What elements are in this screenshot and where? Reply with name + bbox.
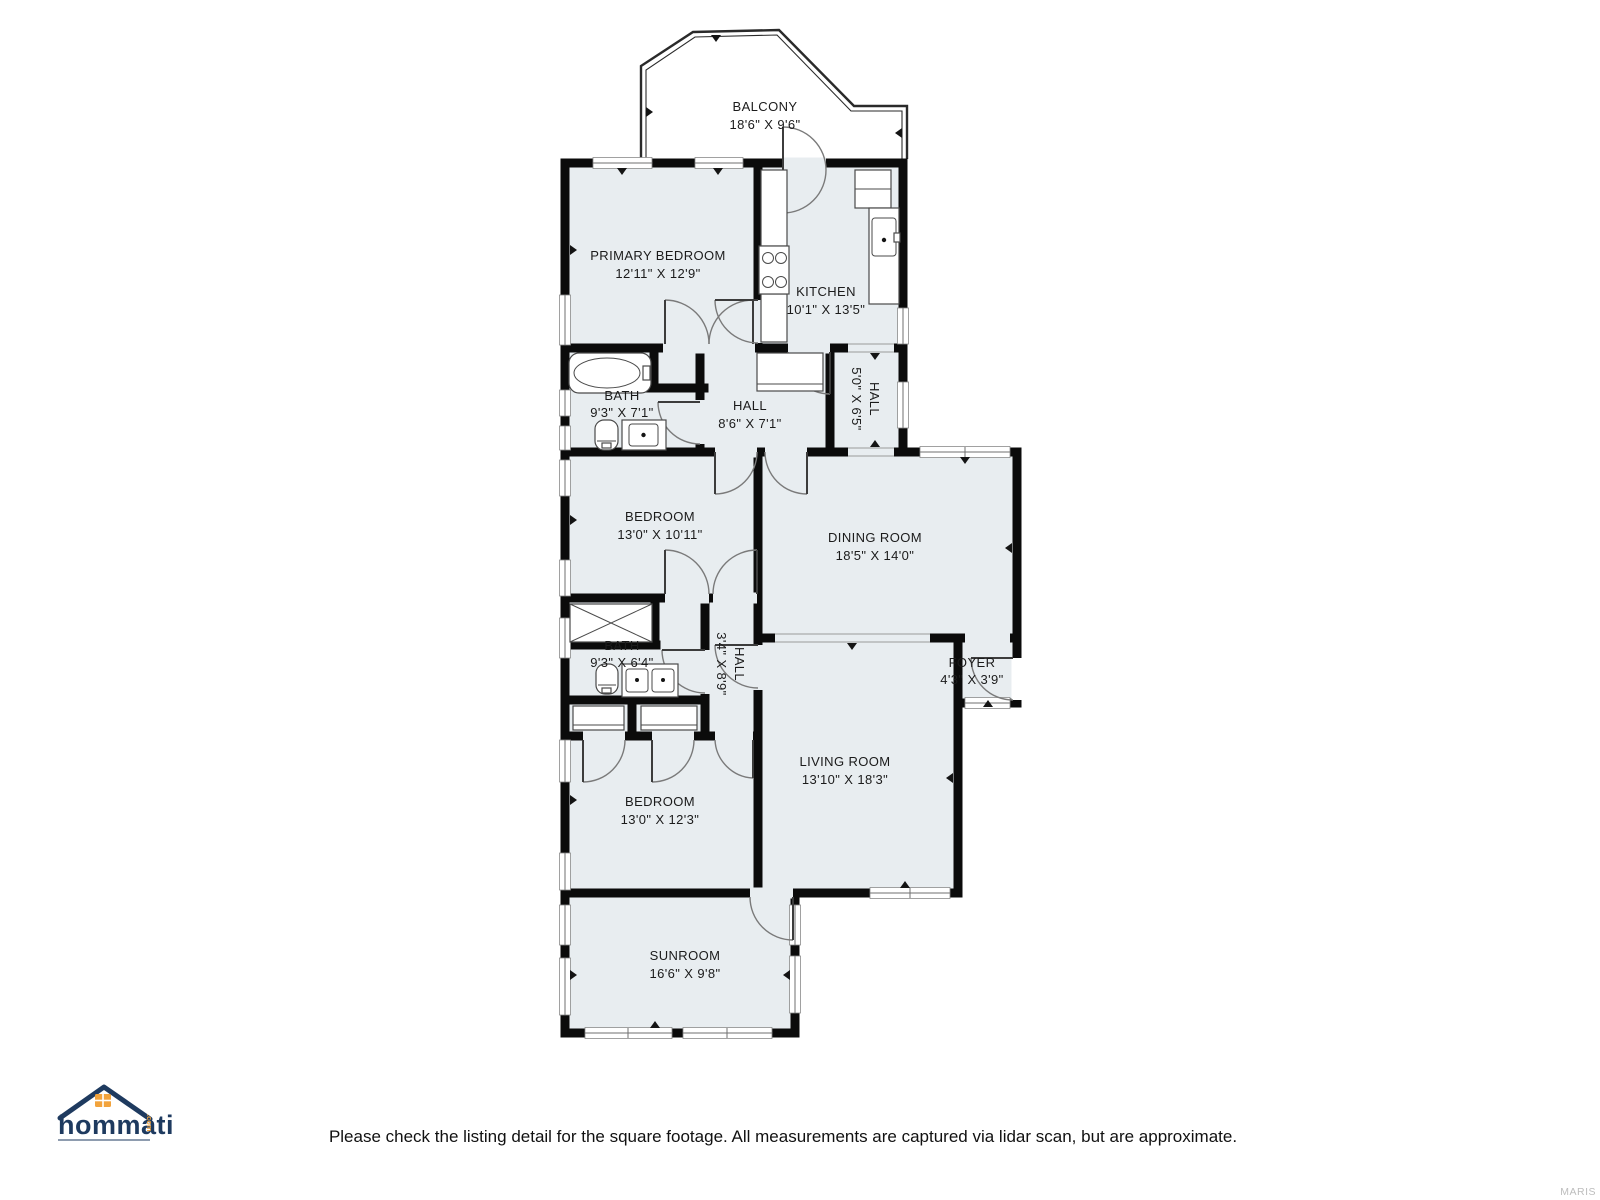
sink-vanity xyxy=(622,420,666,450)
room-name: HALL xyxy=(732,647,747,681)
stove xyxy=(759,246,789,294)
room-dims: 12'11" X 12'9" xyxy=(615,266,700,281)
room-name: DINING ROOM xyxy=(828,530,922,545)
toilet xyxy=(595,420,618,450)
room-dims: 8'6" X 7'1" xyxy=(718,416,781,431)
room-name: BALCONY xyxy=(733,99,798,114)
label-balcony: BALCONY 18'6" X 9'6" xyxy=(729,99,800,132)
room-name: FOYER xyxy=(949,655,996,670)
room-name: HALL xyxy=(733,398,767,413)
room-dims: 13'0" X 10'11" xyxy=(617,527,702,542)
disclaimer-text: Please check the listing detail for the … xyxy=(329,1127,1237,1146)
room-dims: 9'3" X 6'4" xyxy=(590,655,653,670)
room-name: BATH xyxy=(604,638,639,653)
maris-watermark: MARIS xyxy=(1560,1186,1596,1198)
room-dims: 16'6" X 9'8" xyxy=(649,966,720,981)
room-dims: 18'6" X 9'6" xyxy=(729,117,800,132)
room-dims: 13'0" X 12'3" xyxy=(621,812,700,827)
room-dims: 18'5" X 14'0" xyxy=(836,548,915,563)
balcony-railing xyxy=(641,30,907,159)
logo-brand-text: hommati xyxy=(58,1110,174,1140)
floor-plan-page: BALCONY 18'6" X 9'6" PRIMARY BEDROOM 12'… xyxy=(0,0,1600,1200)
kitchen-sink xyxy=(869,208,900,304)
room-name: LIVING ROOM xyxy=(799,754,890,769)
room-name: BATH xyxy=(604,388,639,403)
room-dims: 3'4" X 8'9" xyxy=(714,632,729,695)
logo-tld-text: .com xyxy=(145,1114,154,1132)
hommati-logo: hommati .com xyxy=(58,1087,174,1140)
room-dims: 9'3" X 7'1" xyxy=(590,405,653,420)
room-name: SUNROOM xyxy=(650,948,721,963)
room-dims: 13'10" X 18'3" xyxy=(802,772,888,787)
room-dims: 5'0" X 6'5" xyxy=(849,367,864,430)
room-name: BEDROOM xyxy=(625,509,695,524)
room-name: PRIMARY BEDROOM xyxy=(590,248,726,263)
floor-plan-svg: BALCONY 18'6" X 9'6" PRIMARY BEDROOM 12'… xyxy=(0,0,1600,1200)
refrigerator xyxy=(855,170,891,208)
room-dims: 4'3" X 3'9" xyxy=(940,672,1003,687)
room-name: KITCHEN xyxy=(796,284,856,299)
shower xyxy=(570,604,652,642)
room-name: BEDROOM xyxy=(625,794,695,809)
room-name: HALL xyxy=(867,382,882,416)
closet xyxy=(757,353,823,391)
room-dims: 10'1" X 13'5" xyxy=(787,302,866,317)
bathtub xyxy=(569,353,651,393)
